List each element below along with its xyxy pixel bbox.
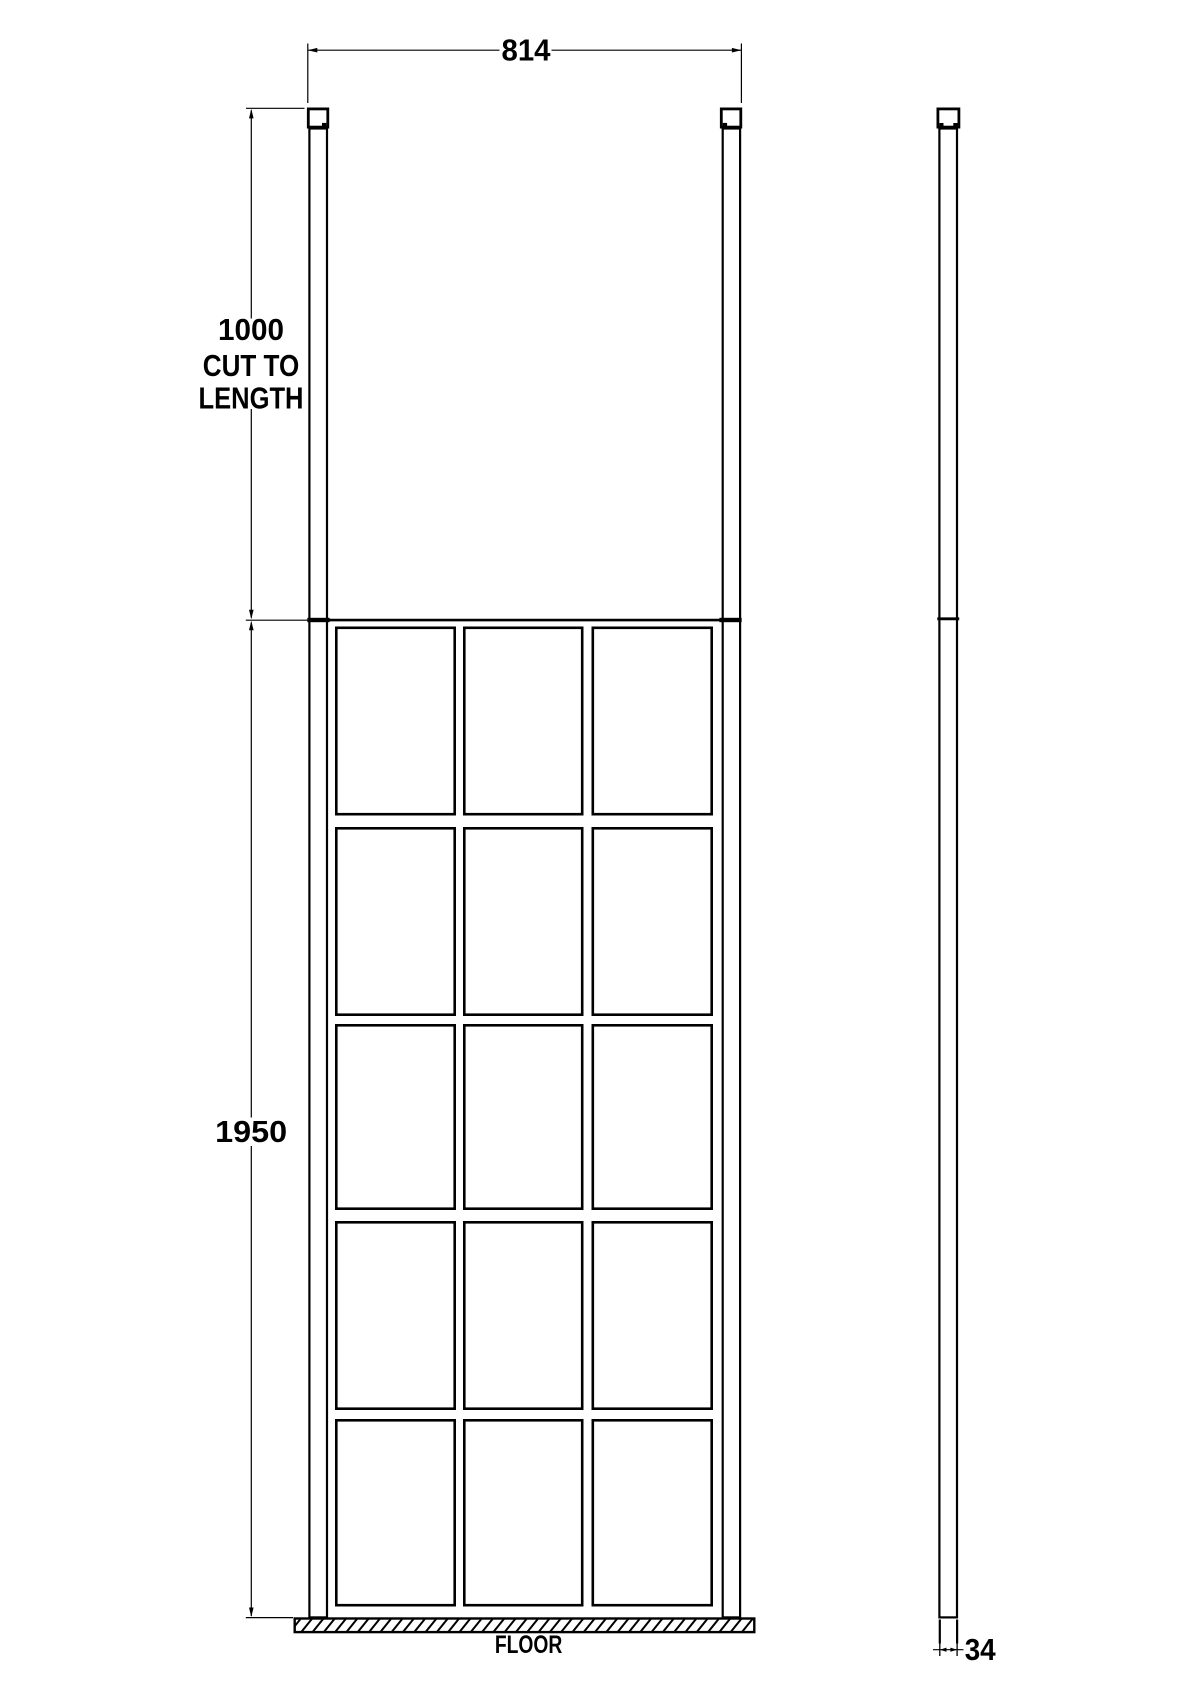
svg-text:1000: 1000 xyxy=(218,312,284,347)
svg-text:FLOOR: FLOOR xyxy=(495,1632,563,1659)
svg-text:LENGTH: LENGTH xyxy=(199,381,304,416)
svg-text:CUT TO: CUT TO xyxy=(203,348,300,383)
svg-text:34: 34 xyxy=(965,1632,997,1667)
svg-text:1950: 1950 xyxy=(215,1114,287,1149)
svg-text:814: 814 xyxy=(502,33,552,68)
